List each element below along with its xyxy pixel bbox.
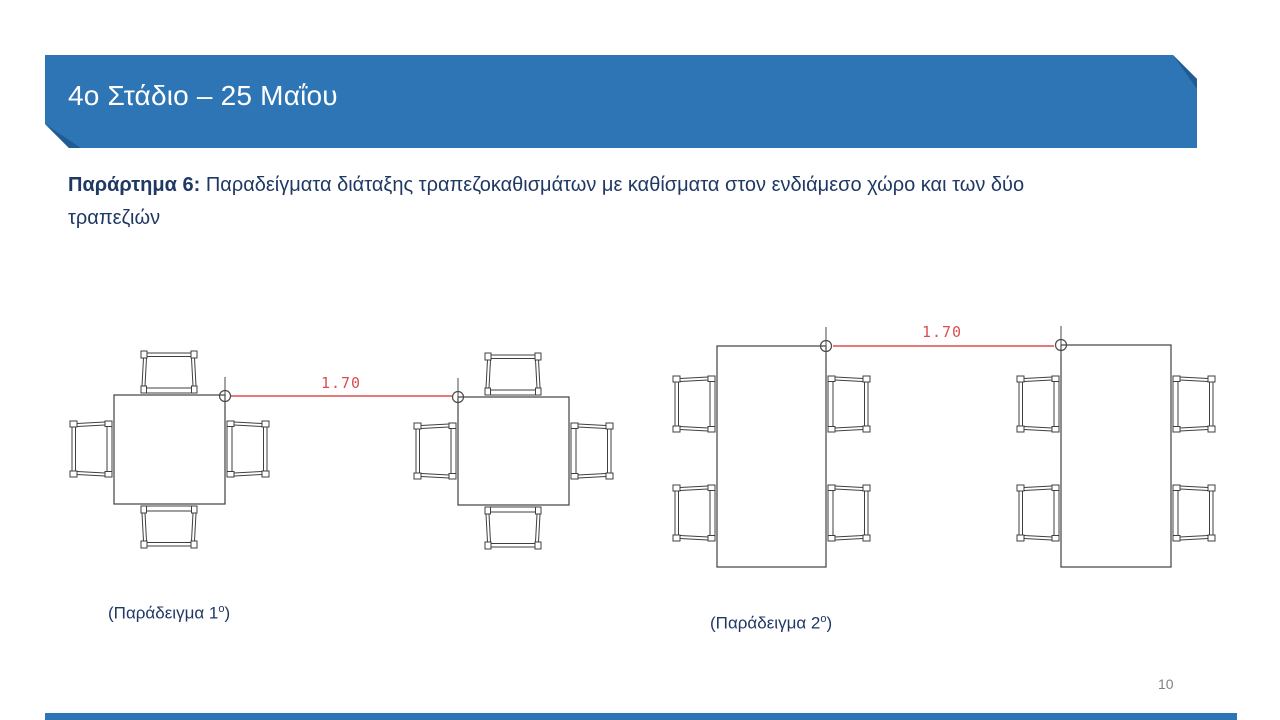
subtitle-text-line1: Παραδείγματα διάταξης τραπεζοκαθισμάτων …: [206, 174, 1024, 196]
slide-title: 4ο Στάδιο – 25 Μαΐου: [68, 80, 338, 112]
page-number: 10: [1158, 676, 1174, 692]
subtitle-line1: Παράρτημα 6: Παραδείγματα διάταξης τραπε…: [68, 174, 1024, 196]
square-table-1: [114, 395, 225, 504]
rect-table-1: [717, 346, 826, 567]
footer-accent-bar: [45, 713, 1237, 720]
caption-example-1: (Παράδειγμα 1ο): [108, 603, 230, 624]
subtitle-label: Παράρτημα 6:: [68, 174, 200, 196]
square-table-2: [458, 397, 569, 505]
caption-example-2: (Παράδειγμα 2ο): [710, 613, 832, 634]
rect-table-2: [1061, 345, 1171, 567]
header-banner: 4ο Στάδιο – 25 Μαΐου: [45, 55, 1197, 148]
figure-example-2-drawing: [660, 320, 1240, 600]
dimension-value-2: 1.70: [919, 323, 965, 341]
presentation-slide: 4ο Στάδιο – 25 Μαΐου Παράρτημα 6: Παραδε…: [0, 0, 1280, 720]
dimension-value-1: 1.70: [318, 374, 364, 392]
subtitle: Παράρτημα 6: Παραδείγματα διάταξης τραπε…: [68, 169, 1024, 235]
subtitle-text-line2: τραπεζιών: [68, 207, 160, 229]
figure-example-1-drawing: [60, 330, 640, 600]
